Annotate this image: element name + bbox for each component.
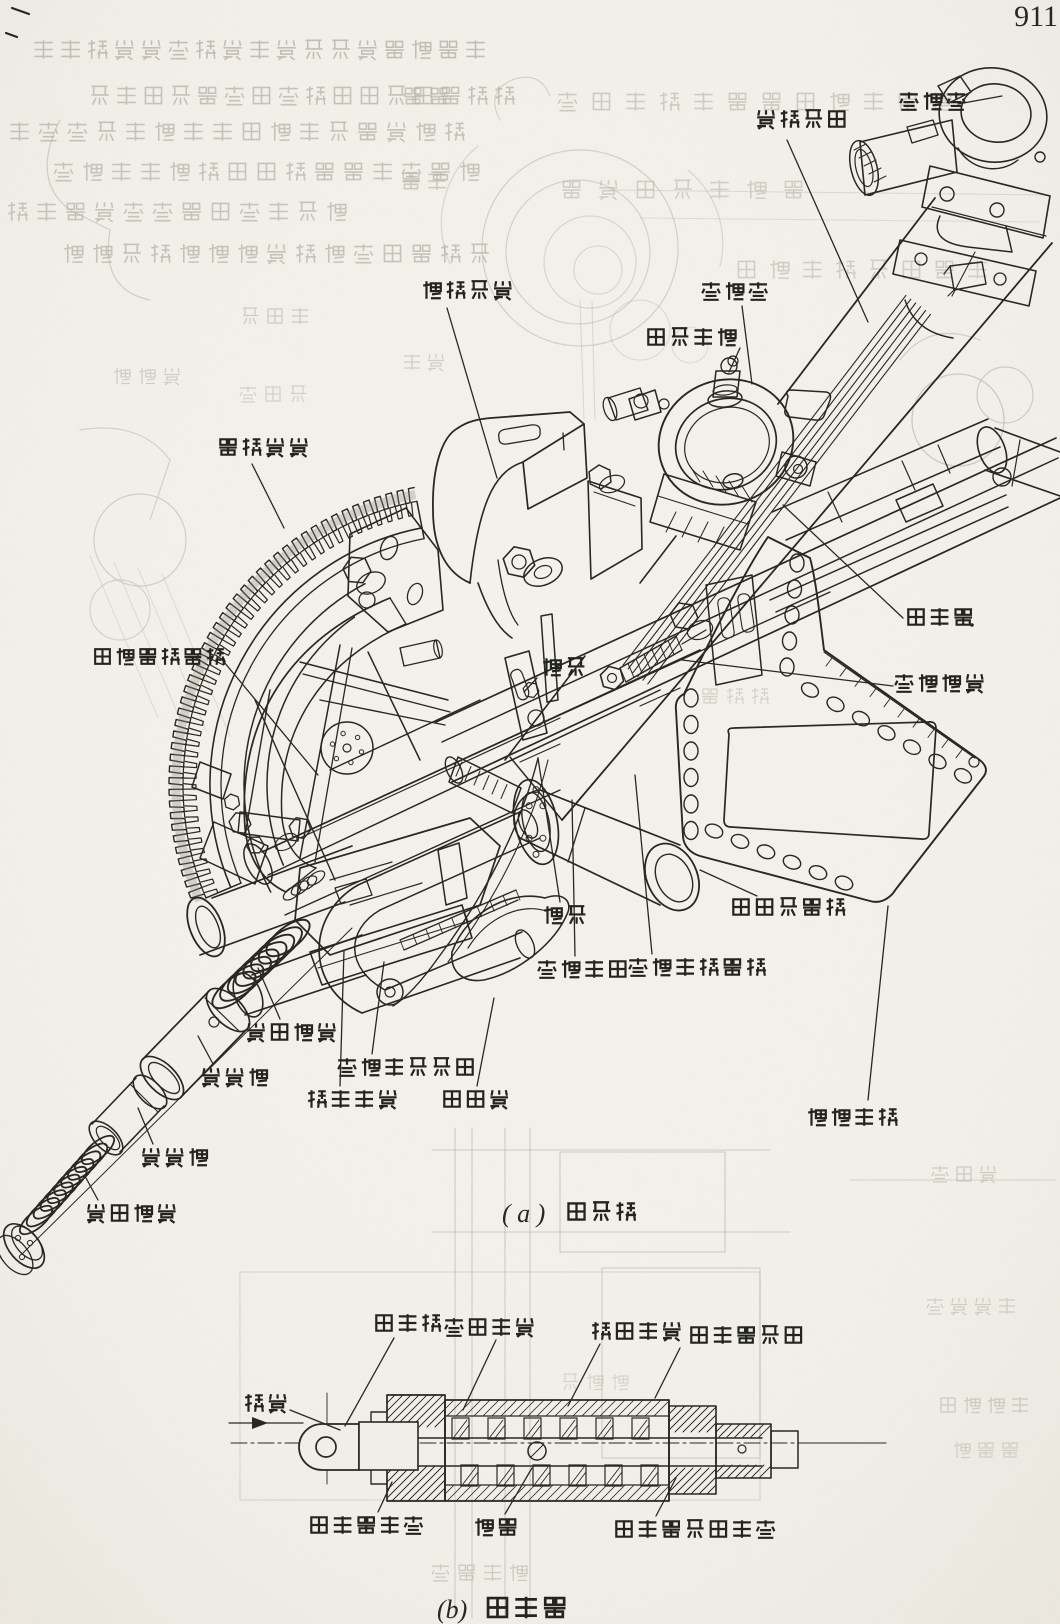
svg-text:( a ): ( a ) [502,1199,545,1228]
svg-text:(b): (b) [437,1595,467,1624]
svg-text:911: 911 [1014,0,1058,33]
